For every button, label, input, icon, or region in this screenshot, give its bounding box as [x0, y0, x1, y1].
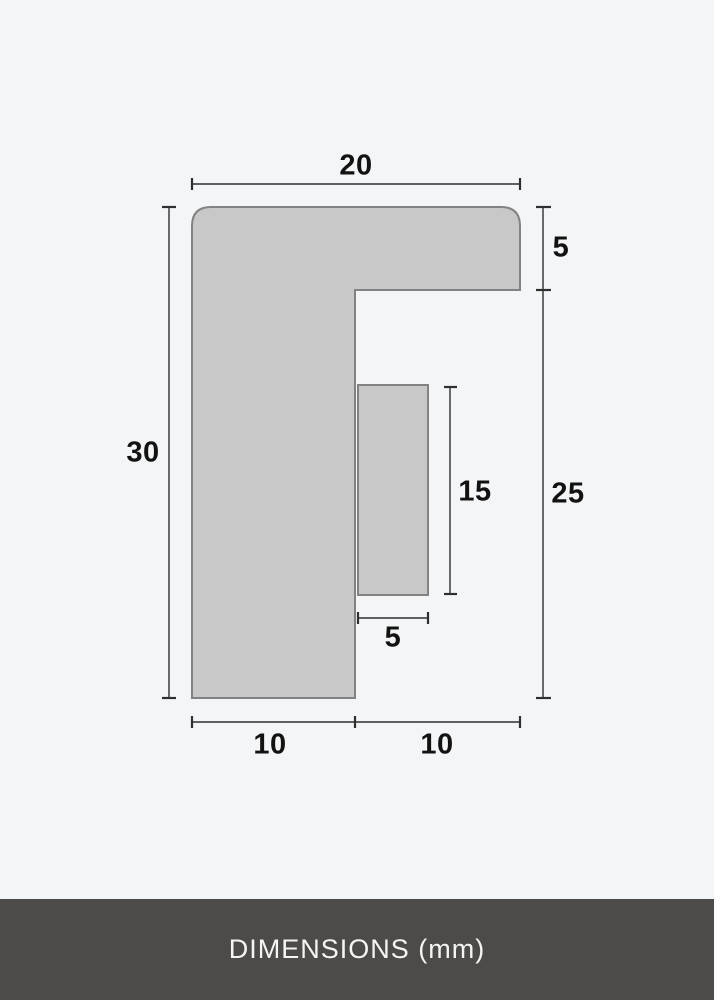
dim-inner-height [444, 387, 457, 594]
dim-label-inner-block-width: 5 [385, 624, 402, 653]
dim-overall-height [162, 207, 176, 698]
footer-title: DIMENSIONS (mm) [229, 934, 485, 965]
dim-label-overall-height: 30 [126, 439, 159, 468]
dim-right-heights [536, 207, 551, 698]
dim-label-flange-height: 5 [553, 234, 570, 263]
inner-block-shape [358, 385, 428, 595]
dim-label-top-width: 20 [339, 152, 372, 181]
dim-label-inner-block-height: 15 [458, 478, 491, 507]
dim-label-bottom-right-width: 10 [420, 731, 453, 760]
dim-bottom-widths [192, 716, 520, 728]
moulding-profile-shape [192, 207, 520, 698]
dimension-drawing-page: 20 5 30 15 25 5 10 10 DIMENSIONS (mm) [0, 0, 714, 1000]
dim-label-bottom-left-width: 10 [253, 731, 286, 760]
dim-label-below-flange-height: 25 [551, 480, 584, 509]
footer-bar: DIMENSIONS (mm) [0, 899, 714, 1000]
